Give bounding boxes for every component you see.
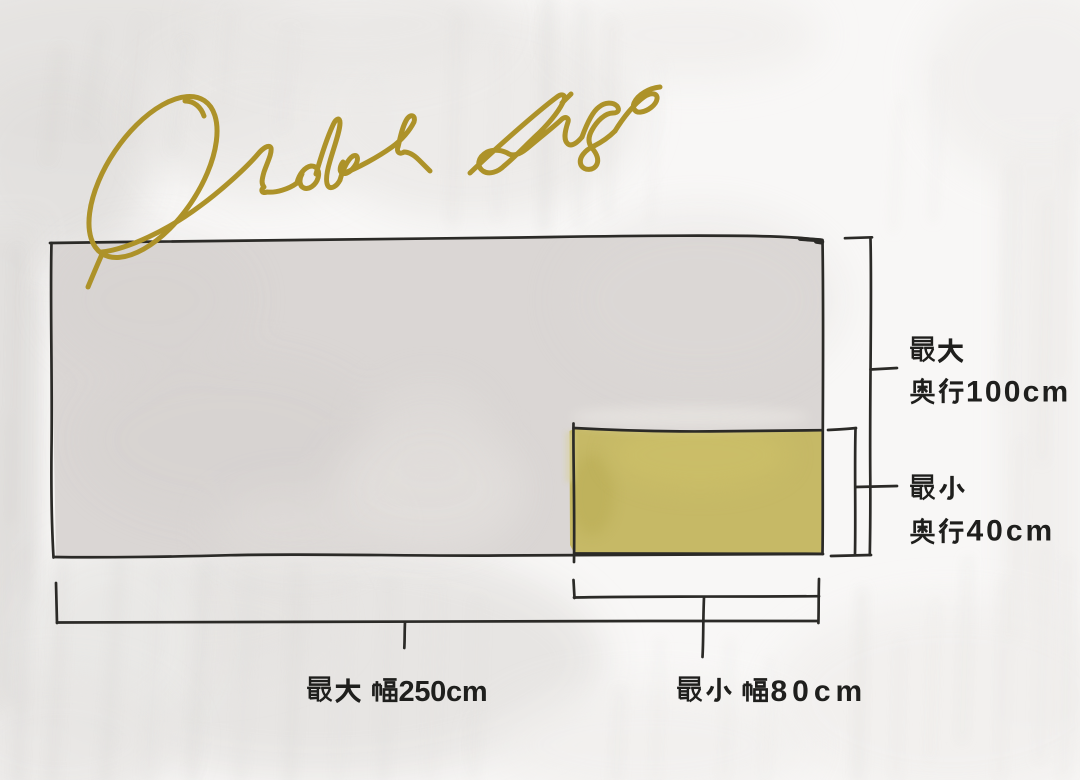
svg-text:100cm: 100cm (966, 376, 1070, 409)
svg-text:250cm: 250cm (399, 676, 488, 708)
svg-text:80cm: 80cm (771, 675, 868, 708)
svg-text:40cm: 40cm (967, 515, 1056, 548)
